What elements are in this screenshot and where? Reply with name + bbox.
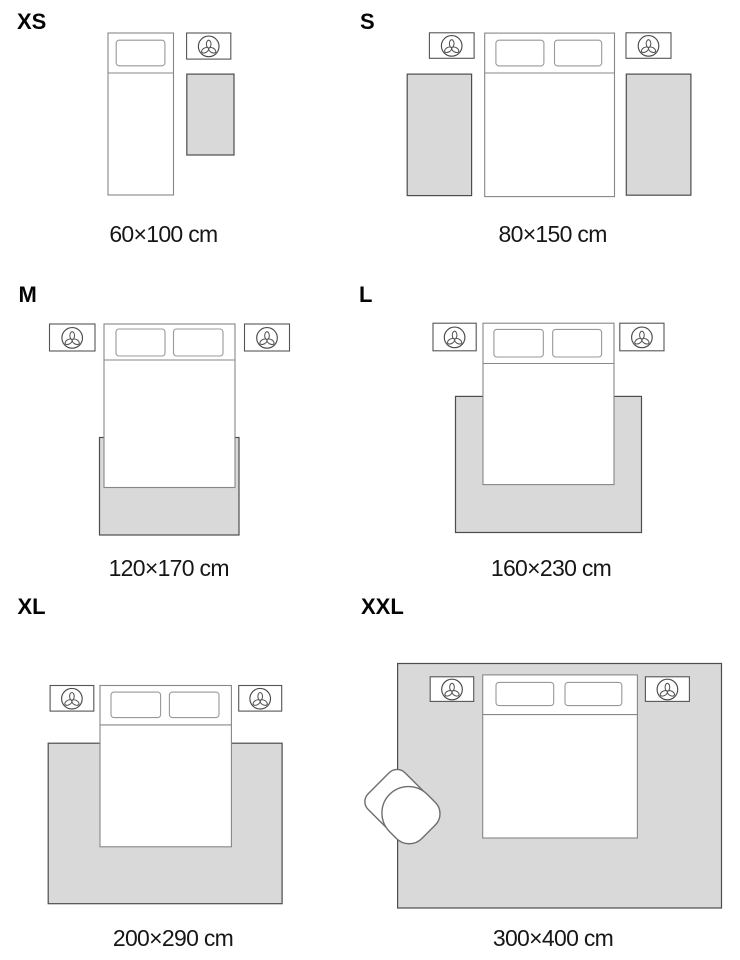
svg-text:200×290 cm: 200×290 cm [113, 925, 233, 951]
svg-text:XS: XS [17, 9, 46, 34]
svg-text:160×230 cm: 160×230 cm [491, 555, 611, 581]
svg-text:XXL: XXL [361, 594, 404, 619]
svg-text:L: L [359, 282, 372, 307]
svg-text:XL: XL [18, 594, 46, 619]
svg-text:80×150 cm: 80×150 cm [499, 221, 607, 247]
svg-text:60×100 cm: 60×100 cm [109, 221, 217, 247]
svg-text:300×400 cm: 300×400 cm [493, 925, 613, 951]
svg-text:120×170 cm: 120×170 cm [109, 555, 229, 581]
svg-text:S: S [360, 9, 375, 34]
svg-text:M: M [19, 282, 37, 307]
